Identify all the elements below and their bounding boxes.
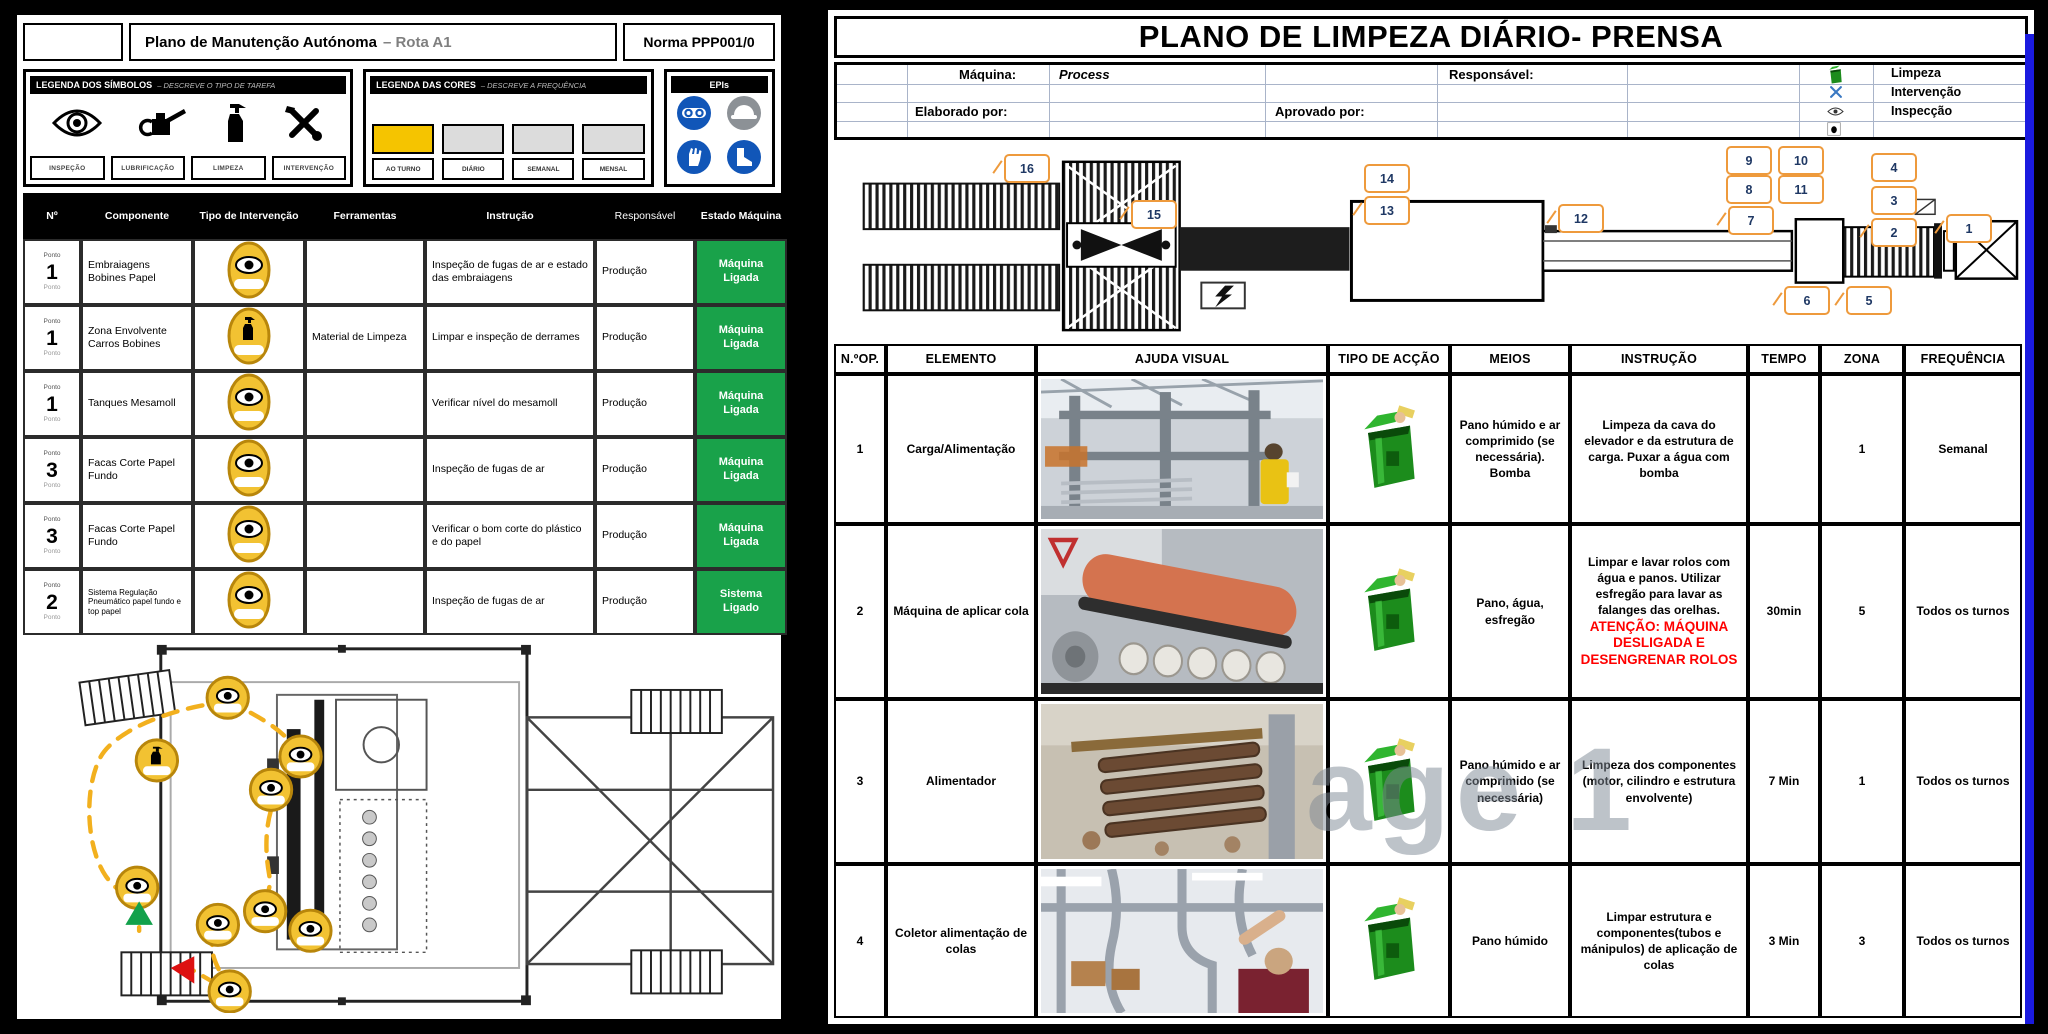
window-edge-strip	[2025, 34, 2034, 1024]
cell-instrucao: Inspeção de fugas de ar	[425, 437, 595, 503]
crossed-tools-icon	[1829, 85, 1843, 104]
cell-tipo	[193, 239, 305, 305]
cell-componente: Tanques Mesamoll	[81, 371, 193, 437]
grid-line	[1799, 65, 1800, 137]
page-title-main: Plano de Manutenção Autónoma	[145, 34, 377, 51]
cell-responsavel: Produção	[595, 239, 695, 305]
color-swatch-diario	[442, 124, 504, 154]
cell-tempo: 7 Min	[1748, 699, 1820, 864]
col-header-tipo: Tipo de Intervenção	[193, 193, 305, 239]
oilcan-icon	[136, 105, 190, 146]
machine-state-badge: Máquina Ligada	[695, 437, 787, 503]
color-items-row: AO TURNO DIÁRIO SEMANAL MENSAL	[370, 94, 646, 180]
ajuda-visual-photo	[1036, 524, 1328, 699]
maquina-value: Process	[1059, 67, 1110, 82]
cell-frequencia: Todos os turnos	[1904, 524, 2022, 699]
left-header: Plano de Manutenção Autónoma – Rota A1 N…	[23, 23, 775, 61]
col-header-instrucao: Instrução	[425, 193, 595, 239]
cell-tipo	[193, 371, 305, 437]
legend-label-intervencao: Intervenção	[1891, 85, 1961, 99]
cell-meios: Pano húmido e ar comprimido (se necessár…	[1450, 374, 1570, 524]
diagram-callout-8: 8	[1726, 175, 1772, 204]
inspection-eye-badge-icon	[227, 439, 271, 501]
color-item-semanal: SEMANAL	[512, 124, 574, 180]
cell-num: Ponto3Ponto	[23, 503, 81, 569]
grid-line	[1049, 65, 1050, 137]
cell-componente: Embraiagens Bobines Papel	[81, 239, 193, 305]
responsavel-label: Responsável:	[1449, 67, 1534, 82]
cell-componente: Facas Corte Papel Fundo	[81, 437, 193, 503]
diagram-callout-11: 11	[1778, 175, 1824, 204]
cell-zona: 1	[1820, 374, 1904, 524]
cell-instrucao: Limpar estrutura e componentes(tubos e m…	[1570, 864, 1748, 1018]
grid-line	[837, 102, 2025, 103]
grid-line	[837, 121, 2025, 122]
cell-op: 1	[834, 374, 886, 524]
cell-num: Ponto1Ponto	[23, 371, 81, 437]
legend-label-inspeccao: Inspecção	[1891, 104, 1952, 118]
helmet-icon	[726, 95, 762, 136]
cell-num: Ponto3Ponto	[23, 437, 81, 503]
machine-state-badge: Máquina Ligada	[695, 239, 787, 305]
diagram-callout-2: 2	[1871, 218, 1917, 247]
gloves-icon	[676, 139, 712, 180]
legend-band: LEGENDA DOS SÍMBOLOS – DESCREVE O TIPO D…	[23, 69, 775, 187]
floor-plan-drawing	[23, 641, 775, 1013]
cell-responsavel: Produção	[595, 371, 695, 437]
maquina-label: Máquina:	[959, 67, 1016, 82]
cell-meios: Pano húmido e ar comprimido (se necessár…	[1450, 699, 1570, 864]
diagram-callout-3: 3	[1871, 186, 1917, 215]
cell-responsavel: Produção	[595, 305, 695, 371]
symbols-legend-title: LEGENDA DOS SÍMBOLOS – DESCREVE O TIPO D…	[30, 76, 346, 94]
diagram-callout-10: 10	[1778, 146, 1824, 175]
cell-responsavel: Produção	[595, 437, 695, 503]
cell-responsavel: Produção	[595, 569, 695, 635]
machine-state-badge: Máquina Ligada	[695, 371, 787, 437]
col-header-tempo: TEMPO	[1748, 344, 1820, 374]
cell-elemento: Carga/Alimentação	[886, 374, 1036, 524]
cell-zona: 1	[1820, 699, 1904, 864]
right-cleaning-plan-sheet: PLANO DE LIMPEZA DIÁRIO- PRENSA Máquina:…	[822, 4, 2040, 1030]
cell-op: 4	[834, 864, 886, 1018]
machine-state-badge: Máquina Ligada	[695, 305, 787, 371]
diagram-callout-7: 7	[1728, 206, 1774, 235]
aprovado-label: Aprovado por:	[1275, 104, 1365, 119]
cell-ferramentas	[305, 503, 425, 569]
cell-frequencia: Todos os turnos	[1904, 864, 2022, 1018]
cell-op: 2	[834, 524, 886, 699]
color-swatch-semanal	[512, 124, 574, 154]
symbols-labels-row: INSPEÇÃO LUBRIFICAÇÃO LIMPEZA INTERVENÇÃ…	[30, 156, 346, 180]
grid-line	[907, 65, 908, 137]
col-header-op: N.ºOP.	[834, 344, 886, 374]
cell-instrucao: Inspeção de fugas de ar e estado das emb…	[425, 239, 595, 305]
cell-ferramentas: Material de Limpeza	[305, 305, 425, 371]
crossed-tools-icon	[283, 102, 325, 149]
boots-icon	[726, 139, 762, 180]
green-bin-icon	[1328, 374, 1450, 524]
epis-title: EPIs	[671, 76, 768, 93]
cell-tempo: 3 Min	[1748, 864, 1820, 1018]
diagram-callout-14: 14	[1364, 164, 1410, 193]
cell-tempo: 30min	[1748, 524, 1820, 699]
cell-tempo	[1748, 374, 1820, 524]
photo-loader-frame	[1041, 379, 1323, 519]
cell-elemento: Coletor alimentação de colas	[886, 864, 1036, 1018]
cell-instrucao: Verificar nível do mesamoll	[425, 371, 595, 437]
cleaning-point-marker	[136, 740, 177, 781]
cell-elemento: Alimentador	[886, 699, 1036, 864]
grid-line	[1437, 65, 1438, 137]
press-line-diagram: 1 2 3 4 5 6 7 8 9 10 11 12 13 14 15 16	[834, 144, 2019, 342]
cell-instrucao: Verificar o bom corte do plástico e do p…	[425, 503, 595, 569]
ajuda-visual-photo	[1036, 864, 1328, 1018]
cell-tipo	[193, 569, 305, 635]
route-floor-plan-diagram	[23, 641, 775, 1013]
cell-tipo	[193, 305, 305, 371]
symbols-legend-panel: LEGENDA DOS SÍMBOLOS – DESCREVE O TIPO D…	[23, 69, 353, 187]
cell-meios: Pano húmido	[1450, 864, 1570, 1018]
header-empty-box	[23, 23, 123, 61]
grid-line	[1265, 65, 1266, 137]
epis-panel: EPIs	[664, 69, 775, 187]
cell-num: Ponto1Ponto	[23, 239, 81, 305]
inspection-eye-badge-icon	[227, 373, 271, 435]
diagram-callout-12: 12	[1558, 204, 1604, 233]
cell-ferramentas	[305, 437, 425, 503]
cell-responsavel: Produção	[595, 503, 695, 569]
cell-tipo	[193, 503, 305, 569]
cell-instrucao: Limpeza da cava do elevador e da estrutu…	[1570, 374, 1748, 524]
diagram-callout-4: 4	[1871, 153, 1917, 182]
grid-line	[1627, 65, 1628, 137]
cleaning-spray-badge-icon	[227, 307, 271, 369]
cell-instrucao: Inspeção de fugas de ar	[425, 569, 595, 635]
green-bin-icon	[1328, 864, 1450, 1018]
cell-tipo	[193, 437, 305, 503]
diagram-callout-16: 16	[1004, 154, 1050, 183]
elaborado-label: Elaborado por:	[915, 104, 1007, 119]
cell-num: Ponto1Ponto	[23, 305, 81, 371]
truss-structure	[527, 717, 773, 964]
color-item-ao-turno: AO TURNO	[372, 124, 434, 180]
diagram-callout-15: 15	[1131, 200, 1177, 229]
symbol-label-limpeza: LIMPEZA	[191, 156, 266, 180]
goggles-icon	[676, 95, 712, 136]
grid-line	[837, 84, 2025, 85]
symbol-label-intervencao: INTERVENÇÃO	[272, 156, 347, 180]
symbol-label-lubrificacao: LUBRIFICAÇÃO	[111, 156, 186, 180]
symbol-label-inspecao: INSPEÇÃO	[30, 156, 105, 180]
diagram-callout-5: 5	[1846, 286, 1892, 315]
diagram-callout-9: 9	[1726, 146, 1772, 175]
diagram-callout-1: 1	[1946, 214, 1992, 243]
cleaning-plan-title: PLANO DE LIMPEZA DIÁRIO- PRENSA	[834, 16, 2028, 58]
green-bin-icon	[1328, 699, 1450, 864]
cell-componente: Zona Envolvente Carros Bobines	[81, 305, 193, 371]
cell-zona: 3	[1820, 864, 1904, 1018]
green-bin-icon	[1328, 524, 1450, 699]
cell-instrucao: Limpar e inspeção de derrames	[425, 305, 595, 371]
left-maintenance-sheet: Plano de Manutenção Autónoma – Rota A1 N…	[10, 8, 788, 1026]
cell-ferramentas	[305, 569, 425, 635]
cell-frequencia: Semanal	[1904, 374, 2022, 524]
info-header-grid: Máquina: Process Responsável: Elaborado …	[834, 62, 2028, 140]
diagram-callout-13: 13	[1364, 196, 1410, 225]
machine-state-badge: Sistema Ligado	[695, 569, 787, 635]
col-header-ferramentas: Ferramentas	[305, 193, 425, 239]
cell-componente: Facas Corte Papel Fundo	[81, 503, 193, 569]
cell-instrucao: Limpeza dos componentes (motor, cilindro…	[1570, 699, 1748, 864]
inspection-eye-badge-icon	[227, 241, 271, 303]
eye-icon	[1827, 104, 1844, 122]
inspection-eye-badge-icon	[227, 571, 271, 633]
grid-line	[1873, 65, 1874, 137]
maintenance-table: Nº Componente Tipo de Intervenção Ferram…	[23, 193, 775, 637]
inspection-eye-badge-icon	[227, 505, 271, 567]
photo-glue-feed-pipes	[1041, 869, 1323, 1013]
cell-meios: Pano, água, esfregão	[1450, 524, 1570, 699]
col-header-frequencia: FREQUÊNCIA	[1904, 344, 2022, 374]
color-swatch-mensal	[582, 124, 644, 154]
col-header-responsavel: Responsável	[595, 193, 695, 239]
color-item-diario: DIÁRIO	[442, 124, 504, 180]
diagram-callout-6: 6	[1784, 286, 1830, 315]
page-title: Plano de Manutenção Autónoma – Rota A1	[129, 23, 617, 61]
epis-icons	[671, 93, 768, 180]
col-header-meios: MEIOS	[1450, 344, 1570, 374]
cell-zona: 5	[1820, 524, 1904, 699]
dot-marker-icon	[1827, 122, 1841, 141]
cell-elemento: Máquina de aplicar cola	[886, 524, 1036, 699]
eye-icon	[51, 107, 103, 144]
col-header-tipo-accao: TIPO DE ACÇÃO	[1328, 344, 1450, 374]
col-header-num: Nº	[23, 193, 81, 239]
cell-ferramentas	[305, 371, 425, 437]
page-title-route: – Rota A1	[383, 34, 452, 51]
colors-legend-title: LEGENDA DAS CORES – DESCREVE A FREQUÊNCI…	[370, 76, 646, 94]
cell-op: 3	[834, 699, 886, 864]
spray-bottle-icon	[224, 102, 250, 149]
ajuda-visual-photo	[1036, 374, 1328, 524]
cell-num: Ponto2Ponto	[23, 569, 81, 635]
cell-ferramentas	[305, 239, 425, 305]
col-header-estado: Estado Máquina	[695, 193, 787, 239]
ajuda-visual-photo	[1036, 699, 1328, 864]
warning-text: ATENÇÃO: MÁQUINA DESLIGADA E DESENGRENAR…	[1576, 619, 1742, 670]
col-header-elemento: ELEMENTO	[886, 344, 1036, 374]
col-header-instrucao: INSTRUÇÃO	[1570, 344, 1748, 374]
colors-legend-panel: LEGENDA DAS CORES – DESCREVE A FREQUÊNCI…	[363, 69, 653, 187]
cleaning-plan-table: N.ºOP. ELEMENTO AJUDA VISUAL TIPO DE ACÇ…	[834, 344, 2022, 1018]
col-header-ajuda-visual: AJUDA VISUAL	[1036, 344, 1328, 374]
cell-componente: Sistema Regulação Pneumático papel fundo…	[81, 569, 193, 635]
color-item-mensal: MENSAL	[582, 124, 644, 180]
photo-glue-machine	[1041, 529, 1323, 694]
legend-label-limpeza: Limpeza	[1891, 66, 1941, 80]
norma-box: Norma PPP001/0	[623, 23, 775, 61]
photo-feeder-rollers	[1041, 704, 1323, 859]
cell-instrucao: Limpar e lavar rolos com água e panos. U…	[1570, 524, 1748, 699]
color-swatch-ao-turno	[372, 124, 434, 154]
cell-frequencia: Todos os turnos	[1904, 699, 2022, 864]
machine-state-badge: Máquina Ligada	[695, 503, 787, 569]
col-header-componente: Componente	[81, 193, 193, 239]
symbols-icons-row	[30, 94, 346, 156]
col-header-zona: ZONA	[1820, 344, 1904, 374]
